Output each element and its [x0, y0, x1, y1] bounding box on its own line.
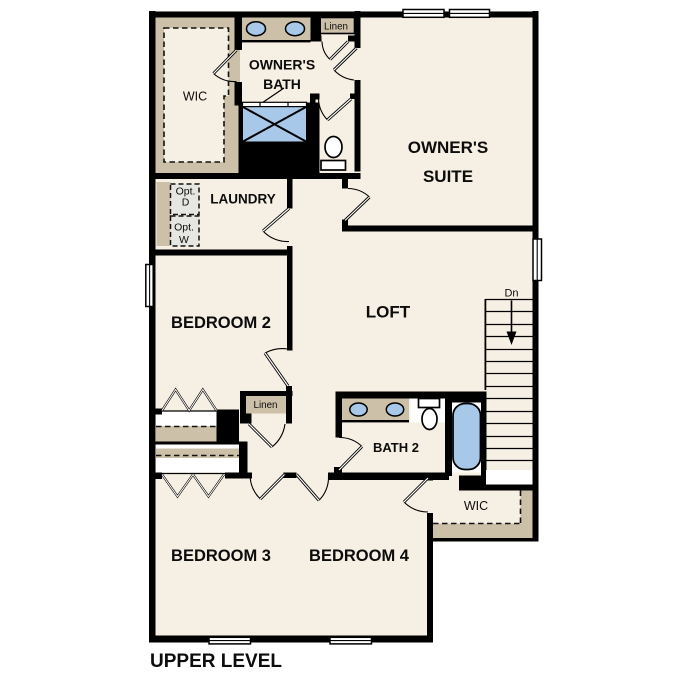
- svg-text:D: D: [182, 197, 190, 209]
- svg-text:W: W: [179, 234, 189, 246]
- svg-text:OWNER'S: OWNER'S: [249, 57, 315, 73]
- svg-text:WIC: WIC: [183, 90, 207, 104]
- svg-text:SUITE: SUITE: [423, 167, 473, 186]
- svg-text:LOFT: LOFT: [366, 303, 411, 322]
- svg-text:Dn: Dn: [504, 288, 518, 300]
- svg-text:BATH: BATH: [263, 76, 301, 92]
- svg-text:Opt.: Opt.: [174, 222, 194, 234]
- svg-text:Linen: Linen: [254, 400, 278, 411]
- svg-text:UPPER LEVEL: UPPER LEVEL: [150, 651, 282, 672]
- svg-text:BEDROOM 4: BEDROOM 4: [309, 547, 410, 565]
- svg-text:WIC: WIC: [464, 499, 488, 513]
- svg-text:OWNER'S: OWNER'S: [408, 138, 489, 157]
- svg-text:BEDROOM 2: BEDROOM 2: [171, 314, 271, 332]
- svg-text:BATH 2: BATH 2: [373, 440, 419, 455]
- svg-text:BEDROOM 3: BEDROOM 3: [171, 547, 271, 565]
- svg-text:Linen: Linen: [324, 22, 348, 33]
- svg-text:LAUNDRY: LAUNDRY: [210, 192, 276, 207]
